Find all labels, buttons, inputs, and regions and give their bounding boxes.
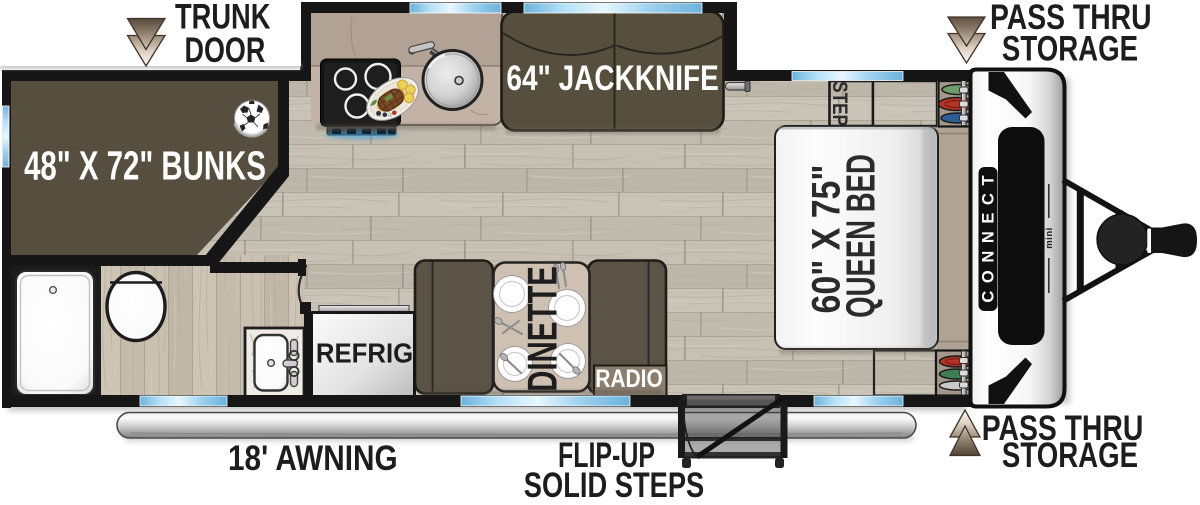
svg-text:mini: mini (1044, 227, 1055, 249)
svg-text:DOOR: DOOR (184, 31, 265, 70)
svg-text:RADIO: RADIO (595, 364, 663, 392)
svg-text:18' AWNING: 18' AWNING (228, 439, 398, 478)
svg-text:STORAGE: STORAGE (1002, 435, 1138, 475)
svg-text:QUEEN BED: QUEEN BED (839, 154, 883, 318)
svg-text:STORAGE: STORAGE (1002, 28, 1138, 68)
svg-text:REFRIG: REFRIG (316, 338, 413, 369)
svg-text:64" JACKKNIFE: 64" JACKKNIFE (506, 58, 718, 98)
svg-text:DINETTE: DINETTE (518, 266, 566, 392)
svg-text:CONNECT: CONNECT (979, 168, 997, 303)
svg-text:SOLID STEPS: SOLID STEPS (524, 466, 704, 505)
svg-text:48" X 72" BUNKS: 48" X 72" BUNKS (24, 144, 266, 189)
svg-text:STEP: STEP (828, 81, 851, 126)
